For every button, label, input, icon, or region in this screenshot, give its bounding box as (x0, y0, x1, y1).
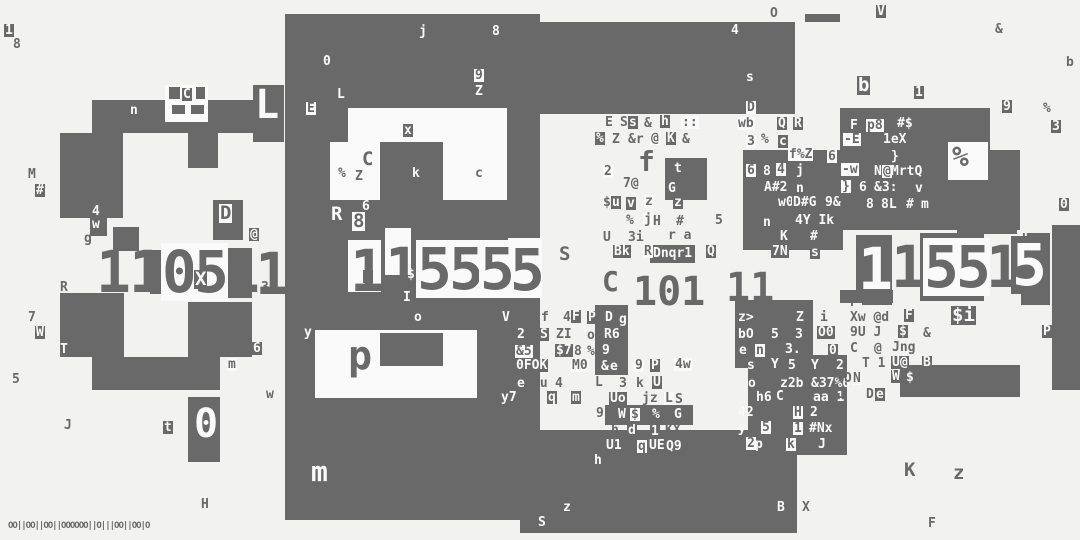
glitch-text: o (414, 311, 422, 324)
glitch-text: 8 (352, 212, 365, 231)
glitch-text: X (802, 501, 810, 514)
glitch-text: z (644, 195, 654, 208)
glitch-text: z (563, 501, 571, 514)
glitch-text: 3 (261, 281, 269, 294)
glitch-text: G (674, 408, 682, 421)
glitch-text: z (673, 196, 683, 209)
glitch-text: # (676, 215, 684, 228)
glitch-text: 0 (828, 344, 838, 357)
glitch-text: 4 (776, 163, 786, 176)
glitch-text: c (778, 135, 788, 148)
glitch-text: A#2 (763, 181, 788, 194)
glitch-block (172, 105, 185, 114)
glitch-text: 1 (385, 240, 418, 298)
glitch-text: 0 (1059, 198, 1069, 211)
glitch-block (191, 105, 204, 114)
glitch-text: wb (737, 117, 755, 130)
glitch-text: & (601, 360, 609, 373)
glitch-text: W (35, 326, 45, 339)
glitch-text: 1 (793, 422, 803, 435)
glitch-text: 6 (746, 164, 756, 177)
glitch-text: @ (874, 342, 882, 355)
glitch-text: -E (843, 133, 861, 146)
glitch-text: e (738, 344, 748, 357)
glitch-text: H (201, 498, 209, 511)
glitch-text: b (1066, 56, 1074, 69)
glitch-text: s (747, 359, 755, 372)
glitch-text: D#G (792, 196, 817, 209)
glitch-text: 0 (161, 243, 196, 301)
binary-string: OO||OO||OO||OOOOOO||O|||OO||OO|O (8, 522, 149, 531)
glitch-text: F (850, 119, 858, 132)
glitch-text: 5 (715, 214, 723, 227)
glitch-text: P (587, 311, 597, 324)
glitch-text: c (475, 167, 483, 180)
glitch-text: S (559, 245, 570, 264)
glitch-cutout (348, 108, 507, 142)
glitch-text: % (952, 143, 969, 171)
glitch-text: C (850, 342, 858, 355)
glitch-text: UE (648, 439, 666, 452)
glitch-text: j (796, 164, 804, 177)
glitch-text: & (682, 133, 690, 146)
glitch-text: $ (906, 371, 914, 384)
glitch-text: M0 (571, 359, 589, 372)
glitch-text: -w (841, 163, 859, 176)
glitch-text: 4Y Ik (795, 214, 834, 227)
glitch-text: L (255, 85, 279, 125)
glitch-text: o (587, 329, 595, 342)
glitch-text: % (1043, 102, 1051, 115)
glitch-text: R (793, 117, 803, 130)
glitch-text: 1eX (883, 133, 906, 146)
glitch-text: g (619, 313, 627, 326)
glitch-text: $ (630, 408, 640, 421)
glitch-text: 5 (955, 238, 990, 296)
glitch-text: B (922, 356, 932, 369)
glitch-text: 2 (810, 406, 818, 419)
glitch-text: E (306, 102, 316, 115)
glitch-text: 3 (619, 377, 627, 390)
glitch-block (900, 365, 1020, 397)
glitch-text: w (266, 388, 274, 401)
glitch-text: 3 (795, 328, 803, 341)
glitch-text: n (763, 216, 771, 229)
glitch-text: k (786, 438, 796, 451)
glitch-text: bO (738, 328, 754, 341)
glitch-text: 4 (563, 311, 571, 324)
glitch-text: 5 (761, 421, 771, 434)
glitch-block (957, 220, 1017, 234)
glitch-text: z> (738, 311, 754, 324)
glitch-text: G (668, 182, 676, 195)
glitch-text: 7N (771, 245, 789, 258)
glitch-text: } (891, 150, 899, 163)
glitch-text: 6 (859, 181, 867, 194)
glitch-text: 2 (516, 328, 526, 341)
glitch-text: Q (706, 245, 716, 258)
glitch-text: D (219, 204, 232, 223)
glitch-text: s (746, 71, 754, 84)
glitch-text: N (852, 372, 862, 385)
glitch-text: L (337, 88, 345, 101)
glitch-text: h (660, 115, 670, 128)
glitch-text: i (820, 311, 828, 324)
glitch-text: 1 (4, 24, 14, 37)
glitch-text: Z (475, 85, 483, 98)
glitch-text: 7 (28, 311, 36, 324)
glitch-text: @ (650, 132, 660, 145)
glitch-block (188, 133, 218, 168)
glitch-text: S (539, 328, 549, 341)
glitch-text: t (163, 421, 173, 434)
glitch-text: 6 (252, 342, 262, 355)
glitch-text: Q (777, 117, 787, 130)
glitch-text: #$ (897, 117, 913, 130)
glitch-text: 5 (1011, 236, 1046, 294)
glitch-text: 11 (726, 268, 774, 308)
glitch-text: e (875, 388, 885, 401)
glitch-text: KX (665, 424, 681, 437)
glitch-text: s (810, 246, 820, 259)
glitch-text: 8 (866, 198, 874, 211)
glitch-text: 0 (323, 55, 331, 68)
glitch-text: :: (681, 116, 699, 129)
glitch-block (540, 22, 795, 114)
glitch-text: 2 (603, 165, 613, 178)
glitch-text: 42 (738, 406, 754, 419)
glitch-text: @ (249, 228, 259, 241)
glitch-text: 9 (1002, 100, 1012, 113)
glitch-text: 5 (448, 240, 483, 298)
glitch-text: w (92, 218, 100, 231)
glitch-text: 1 (914, 86, 924, 99)
glitch-text: P (1042, 325, 1052, 338)
glitch-block (805, 14, 840, 22)
glitch-text: U (652, 376, 662, 389)
glitch-text: h6 (756, 391, 772, 404)
glitch-text: 9 (602, 344, 610, 357)
glitch-text: H (653, 215, 661, 228)
glitch-text: 9 (596, 407, 604, 420)
glitch-text: 9 (634, 359, 644, 372)
glitch-text: iu (532, 377, 548, 390)
glitch-text: n (755, 344, 765, 357)
glitch-text: M (28, 168, 36, 181)
glitch-text: h (594, 454, 602, 467)
glitch-block (840, 150, 1020, 230)
glitch-text: v (915, 182, 923, 195)
glitch-text: K (904, 461, 915, 480)
glitch-block (188, 302, 252, 357)
glitch-text: $i (951, 306, 976, 325)
glitch-text: %I (587, 345, 603, 358)
glitch-text: O0 (817, 326, 835, 339)
glitch-text: 8 (492, 25, 500, 38)
glitch-text: q (637, 440, 647, 453)
glitch-text: 4 (555, 377, 563, 390)
glitch-text: L (664, 392, 674, 405)
glitch-text: jz (642, 392, 658, 405)
glitch-text: r a (668, 229, 691, 242)
glitch-text: # (35, 184, 45, 197)
glitch-text: 0FOK (515, 359, 548, 372)
glitch-text: 1 (350, 242, 383, 300)
glitch-text: % (338, 167, 346, 180)
glitch-text: 1 (255, 245, 288, 303)
glitch-text: S (538, 516, 546, 529)
glitch-text: 3. (785, 343, 801, 356)
glitch-block (1052, 225, 1080, 390)
glitch-text: U@ (891, 356, 909, 369)
glitch-text: n (130, 104, 138, 117)
glitch-text: R (643, 245, 653, 258)
glitch-text: Bk (613, 245, 631, 258)
glitch-text: B (777, 501, 785, 514)
glitch-text: e (609, 360, 619, 373)
glitch-text: 5 (416, 240, 451, 298)
glitch-text: ZI (556, 328, 572, 341)
glitch-text: &5 (515, 345, 533, 358)
glitch-text: k (636, 377, 644, 390)
glitch-text: p8 (866, 119, 884, 132)
glitch-text: &3: (874, 181, 897, 194)
glitch-text: Z (795, 311, 805, 324)
glitch-text: P (650, 359, 660, 372)
glitch-text: $7 (555, 344, 573, 357)
glitch-text: R (60, 281, 68, 294)
glitch-text: C (362, 150, 373, 169)
glitch-text: 3 (746, 135, 756, 148)
glitch-text: Q9 (666, 440, 682, 453)
glitch-block (380, 333, 443, 366)
glitch-text: Z (355, 170, 363, 183)
glitch-text: y7 (500, 391, 518, 404)
glitch-text: Jng (892, 341, 915, 354)
glitch-text: 8 (13, 38, 21, 51)
glitch-text: $ (898, 325, 908, 338)
glitch-text: 5 (479, 240, 514, 298)
glitch-text: 1 (96, 243, 129, 301)
glitch-text: %O (836, 372, 852, 385)
glitch-text: 6 (362, 200, 370, 213)
glitch-text: p (348, 336, 372, 376)
glitch-text: MrtQ (891, 165, 922, 178)
glitch-text: m (227, 358, 237, 371)
glitch-text: 5 (510, 241, 543, 299)
glitch-text: 8 (574, 345, 582, 358)
glitch-text: 1 (891, 238, 924, 296)
glitch-text: E (605, 116, 613, 129)
glitch-text: W (618, 408, 626, 421)
glitch-text: % (595, 132, 605, 145)
glitch-text: 8L (881, 198, 897, 211)
glitch-text: O (770, 7, 778, 20)
glitch-text: t (673, 162, 683, 175)
glitch-text: s (628, 116, 638, 129)
glitch-text: N (874, 165, 882, 178)
glitch-text: C (182, 88, 192, 101)
glitch-text: F (571, 310, 581, 323)
glitch-text: k (412, 167, 420, 180)
glitch-text: } (841, 180, 851, 193)
glitch-text: Xw @d (850, 311, 889, 324)
glitch-text: $ (603, 196, 611, 209)
glitch-text: K (666, 132, 676, 145)
glitch-text: 6 (827, 150, 837, 163)
glitch-text: & (644, 117, 652, 130)
glitch-text: 7@ (623, 177, 639, 190)
glitch-text: 1 (838, 388, 846, 401)
glitch-text: 101 (633, 272, 705, 312)
glitch-text: q (507, 345, 515, 358)
glitch-text: U (603, 231, 611, 244)
glitch-text: 9 (474, 69, 484, 82)
glitch-text: 1 (129, 243, 162, 301)
glitch-text: & (923, 327, 931, 340)
glitch-text: 3 (1051, 120, 1061, 133)
glitch-text: e (516, 377, 526, 390)
glitch-text: 1 (225, 243, 258, 301)
glitch-text: m (571, 391, 581, 404)
glitch-text: % (652, 408, 660, 421)
glitch-block (196, 87, 205, 99)
glitch-text: g (84, 232, 92, 245)
glitch-text: Y (811, 359, 819, 372)
glitch-text: #Nx (809, 422, 832, 435)
glitch-text: b (857, 76, 870, 95)
glitch-text: H (793, 406, 803, 419)
glitch-text: 5 (788, 359, 796, 372)
glitch-text: y (738, 422, 746, 435)
glitch-text: j (643, 213, 653, 226)
glitch-text: P (850, 296, 858, 309)
glitch-text: L (595, 376, 603, 389)
glitch-text: T (60, 343, 68, 356)
glitch-text: z (953, 464, 964, 483)
glitch-text: Y (770, 358, 780, 371)
glitch-text: U1 (605, 439, 623, 452)
glitch-text: f%Z (788, 148, 813, 161)
glitch-text: K (780, 230, 788, 243)
glitch-text: 4w (674, 358, 692, 371)
glitch-text: % (761, 133, 769, 146)
glitch-text: y (304, 326, 312, 339)
glitch-text: 4 (731, 24, 739, 37)
glitch-text: p (755, 438, 763, 451)
glitch-text: Dnqr1 (653, 247, 692, 260)
glitch-text: R6 (604, 328, 620, 341)
glitch-text: Uo (609, 392, 627, 405)
glitch-text: C (602, 268, 619, 296)
glitch-text: S (620, 116, 628, 129)
glitch-canvas: 18j809ZLEO4V&bsDESs&h::wbQR%Z&r@K&3%cf%Z… (0, 0, 1080, 540)
glitch-text: D (746, 101, 756, 114)
glitch-text: 9U J (850, 326, 881, 339)
glitch-text: V (876, 5, 886, 18)
glitch-text: d (627, 424, 637, 437)
glitch-text: & (995, 23, 1003, 36)
glitch-text: J (818, 438, 826, 451)
glitch-text: 8 (763, 165, 771, 178)
glitch-text: D (866, 388, 874, 401)
glitch-text: V (501, 311, 511, 324)
glitch-text: q (547, 391, 557, 404)
glitch-text: 5 (771, 328, 779, 341)
glitch-text: f (638, 148, 655, 176)
glitch-text: W (891, 370, 901, 383)
glitch-text: x (403, 124, 413, 137)
glitch-text: h (611, 424, 619, 437)
glitch-text: 9& (825, 196, 841, 209)
glitch-text: T 1 (862, 357, 885, 370)
glitch-text: 1 (650, 425, 660, 438)
glitch-text: R (331, 205, 342, 224)
glitch-text: # (906, 198, 914, 211)
glitch-text: m (311, 458, 328, 486)
glitch-text: m (920, 198, 930, 211)
glitch-text: v (626, 197, 636, 210)
glitch-text: Z (612, 133, 620, 146)
glitch-text: # (810, 230, 818, 243)
glitch-text: % (626, 214, 634, 227)
glitch-text: C (775, 390, 785, 403)
glitch-block (169, 87, 180, 99)
glitch-text: f (541, 311, 549, 324)
glitch-text: 5 (923, 238, 958, 296)
glitch-text: X (194, 270, 207, 289)
glitch-text: j (419, 25, 427, 38)
glitch-text: 0 (194, 404, 218, 444)
glitch-text: o (748, 377, 756, 390)
glitch-text: u (611, 196, 621, 209)
glitch-text: F (904, 309, 914, 322)
glitch-text: n (796, 182, 804, 195)
glitch-text: J (64, 419, 72, 432)
glitch-text: 5 (12, 373, 20, 386)
glitch-block (92, 357, 220, 390)
glitch-text: F (928, 517, 936, 530)
glitch-text: D (605, 311, 613, 324)
glitch-text: 1 (858, 240, 891, 298)
glitch-text: 3i (628, 231, 644, 244)
glitch-text: S (675, 393, 683, 406)
